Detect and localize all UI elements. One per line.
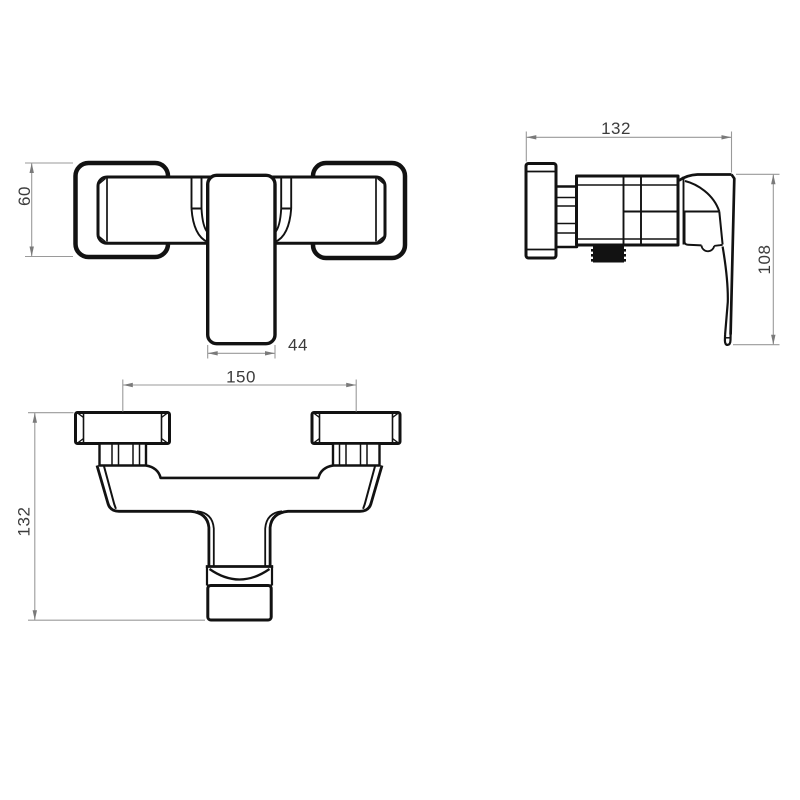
- dim-108-arrow-bottom: [771, 335, 775, 345]
- bottom-yoke-front-contour: [146, 466, 333, 478]
- side-outlet-thread-1: [591, 249, 626, 252]
- bottom-yoke-outer-left: [97, 466, 209, 567]
- dim-150-arrow-left: [123, 383, 133, 387]
- handle-pivot-housing-top-right: [685, 212, 723, 245]
- handle-neck-curve: [685, 181, 719, 212]
- dim-label-side-handle-height: 108: [755, 245, 774, 275]
- dim-label-front-height: 60: [15, 186, 34, 206]
- dim-60-arrow-bottom: [30, 247, 34, 257]
- handle-blade-right-edge: [731, 175, 735, 335]
- front-spout-body: [208, 175, 275, 343]
- dim-108-arrow-top: [771, 174, 775, 184]
- side-outlet-thread-2: [591, 254, 626, 257]
- bottom-escutcheon-right: [312, 413, 400, 444]
- faucet-technical-drawing: 60 44 132: [0, 0, 800, 800]
- side-escutcheon: [526, 164, 556, 259]
- side-view: 132 108: [526, 119, 780, 345]
- handle-screw-boss: [702, 245, 723, 251]
- bottom-outlet-ring-arc: [210, 569, 270, 580]
- handle-tip: [725, 335, 731, 345]
- side-valve-body: [577, 176, 679, 245]
- dim-44-arrow-left: [208, 351, 218, 355]
- handle-blade-inner-edge: [723, 247, 728, 335]
- dim-label-front-spout-width: 44: [288, 336, 308, 355]
- dim-132side-arrow-right: [722, 135, 732, 139]
- front-view: 60 44: [15, 163, 405, 359]
- dim-44-arrow-right: [265, 351, 275, 355]
- side-wall-connector: [556, 187, 577, 248]
- bottom-yoke-inner-slant-left: [104, 466, 116, 509]
- bottom-escutcheon-left: [76, 413, 170, 444]
- dim-label-bottom-center-distance: 150: [226, 367, 256, 386]
- bottom-yoke-inner-slant-right: [363, 466, 375, 509]
- technical-drawing-canvas: 60 44 132: [0, 0, 800, 800]
- bottom-outlet-ring: [207, 567, 272, 586]
- side-outlet-thread-3: [591, 259, 626, 262]
- dim-150-arrow-right: [346, 383, 356, 387]
- dim-60-arrow-top: [30, 163, 34, 173]
- side-connector-ribs: [556, 198, 577, 234]
- dim-44-extension-lines: [208, 345, 275, 359]
- bottom-outlet-nut: [208, 586, 271, 621]
- bottom-yoke-outer-right: [270, 466, 382, 567]
- dim-132side-arrow-left: [526, 135, 536, 139]
- dim-132bottom-arrow-bottom: [33, 610, 37, 620]
- dim-label-bottom-total-depth: 132: [15, 507, 34, 537]
- handle-top-edge: [679, 175, 732, 181]
- bottom-view: 150 132: [15, 367, 401, 620]
- dim-132bottom-arrow-top: [33, 413, 37, 423]
- dim-label-side-depth: 132: [601, 119, 631, 138]
- handle-pivot-housing-left-bottom: [685, 212, 702, 246]
